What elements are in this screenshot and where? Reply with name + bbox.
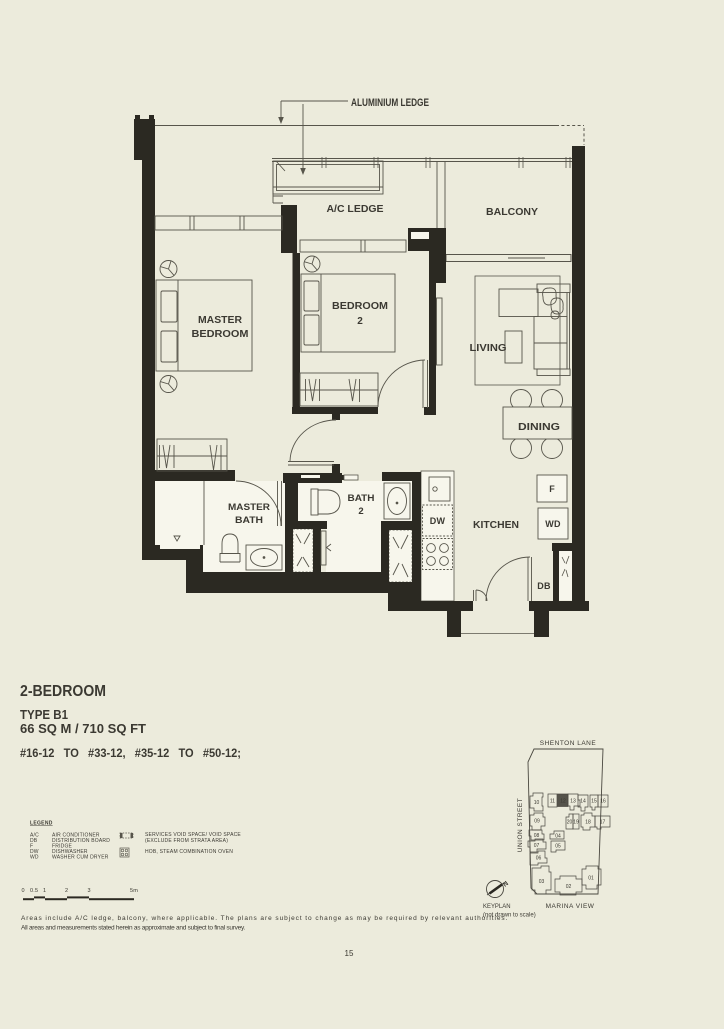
svg-text:5m: 5m: [130, 888, 138, 894]
svg-text:F: F: [549, 484, 555, 494]
svg-text:06: 06: [536, 856, 542, 862]
svg-text:07: 07: [534, 843, 540, 849]
svg-text:03: 03: [539, 879, 545, 885]
svg-text:3: 3: [88, 888, 91, 894]
svg-text:ALUMINIUM LEDGE: ALUMINIUM LEDGE: [351, 97, 429, 109]
svg-text:BATH: BATH: [235, 515, 263, 526]
svg-text:LEGEND: LEGEND: [30, 821, 53, 827]
svg-text:2: 2: [357, 316, 363, 327]
svg-text:11: 11: [550, 799, 555, 805]
svg-text:0: 0: [22, 888, 25, 894]
svg-text:15: 15: [345, 949, 354, 958]
svg-text:19: 19: [573, 820, 579, 826]
svg-text:0.5: 0.5: [30, 888, 38, 894]
svg-text:HOB, STEAM COMBINATION OVEN: HOB, STEAM COMBINATION OVEN: [145, 849, 233, 855]
svg-text:KEYPLAN: KEYPLAN: [483, 903, 511, 910]
svg-text:05: 05: [555, 844, 561, 850]
svg-text:2-BEDROOM: 2-BEDROOM: [20, 683, 106, 700]
svg-text:01: 01: [588, 876, 594, 882]
svg-text:SHENTON LANE: SHENTON LANE: [540, 740, 597, 747]
svg-text:(not drawn to scale): (not drawn to scale): [483, 913, 536, 919]
svg-text:MARINA VIEW: MARINA VIEW: [546, 903, 595, 910]
svg-text:08: 08: [534, 833, 540, 839]
svg-text:BEDROOM: BEDROOM: [192, 329, 249, 340]
svg-text:DINING: DINING: [518, 422, 560, 433]
svg-text:KITCHEN: KITCHEN: [473, 520, 519, 531]
svg-text:BATH: BATH: [348, 493, 375, 504]
svg-text:LIVING: LIVING: [470, 343, 507, 354]
svg-text:2: 2: [65, 888, 68, 894]
svg-text:WD: WD: [545, 519, 561, 529]
svg-text:DB: DB: [537, 581, 551, 591]
svg-text:DW: DW: [430, 516, 446, 526]
svg-text:WASHER CUM DRYER: WASHER CUM DRYER: [52, 855, 109, 861]
svg-text:02: 02: [566, 884, 572, 890]
svg-text:14: 14: [580, 799, 586, 805]
svg-text:MASTER: MASTER: [198, 315, 243, 326]
svg-text:20: 20: [567, 820, 573, 826]
svg-text:2: 2: [358, 506, 363, 517]
svg-text:1: 1: [43, 888, 46, 894]
svg-text:(EXCLUDE FROM STRATA AREA): (EXCLUDE FROM STRATA AREA): [145, 838, 228, 844]
svg-text:#16-12 TO #33-12, #35-12: #16-12 TO #33-12, #35-12 TO #50-12;: [20, 748, 241, 760]
svg-text:10: 10: [534, 800, 540, 806]
svg-text:09: 09: [534, 819, 540, 825]
svg-text:12: 12: [560, 799, 566, 805]
svg-text:BEDROOM: BEDROOM: [332, 301, 388, 312]
svg-text:18: 18: [585, 820, 591, 826]
svg-text:TYPE B1: TYPE B1: [20, 708, 68, 722]
svg-text:BALCONY: BALCONY: [486, 206, 538, 218]
svg-text:16: 16: [600, 799, 606, 805]
svg-text:17: 17: [600, 820, 606, 826]
svg-text:66 SQ M / 710 SQ FT: 66 SQ M / 710 SQ FT: [20, 721, 146, 736]
svg-text:WD: WD: [30, 855, 39, 861]
svg-text:All areas and measurements sta: All areas and measurements stated herein…: [21, 925, 245, 932]
svg-text:13: 13: [570, 799, 576, 805]
svg-text:A/C LEDGE: A/C LEDGE: [327, 203, 384, 215]
svg-text:UNION STREET: UNION STREET: [517, 798, 524, 852]
svg-text:04: 04: [555, 834, 561, 840]
svg-text:15: 15: [591, 799, 597, 805]
svg-text:MASTER: MASTER: [228, 502, 270, 513]
svg-text:Areas include A/C ledge, balco: Areas include A/C ledge, balcony, where …: [21, 915, 508, 922]
